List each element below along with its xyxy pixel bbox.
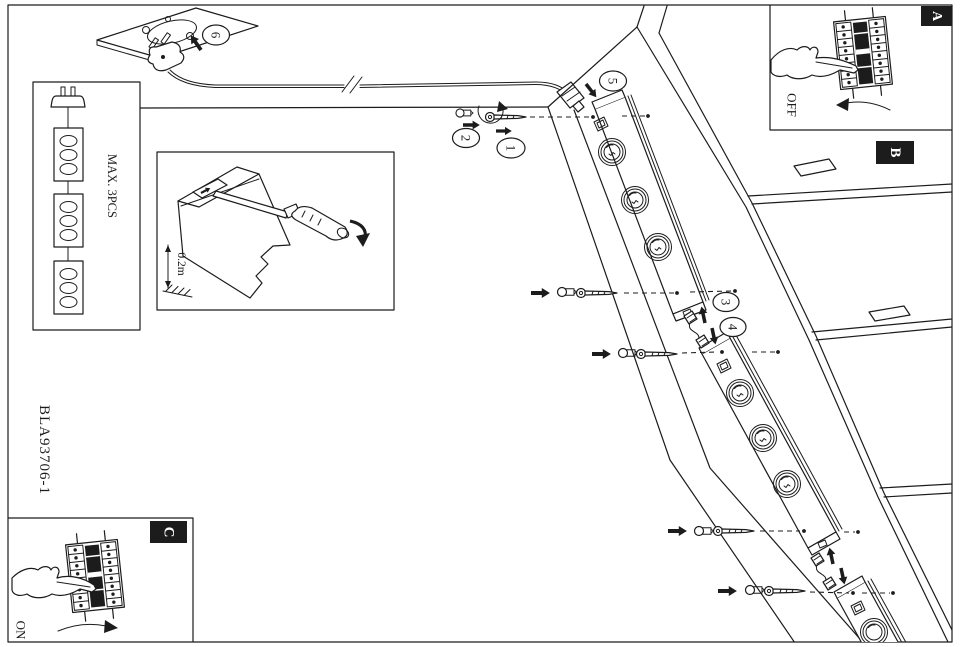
- inset-a-label: A: [929, 11, 944, 22]
- max-pieces-label: MAX. 3PCS: [105, 154, 119, 218]
- step-4-number: 4: [726, 324, 741, 331]
- inset-c-label: C: [161, 527, 177, 538]
- on-label: ON: [14, 621, 29, 640]
- cover-opening-box: 0.2m: [157, 152, 394, 310]
- terminal-block-icon: [833, 7, 894, 100]
- step-2-badge: 2: [453, 129, 480, 148]
- step-6-badge: 6: [203, 25, 230, 45]
- step-4-badge: 4: [720, 318, 746, 337]
- off-label: OFF: [785, 93, 800, 117]
- light-bar-chain-icon: [54, 128, 83, 314]
- step-3-badge: 3: [713, 293, 739, 312]
- terminal-block-icon: [65, 530, 126, 623]
- step-6-number: 6: [209, 32, 224, 39]
- wall-anchor-icon: [746, 586, 765, 595]
- distance-label: 0.2m: [175, 252, 187, 275]
- step-1-number: 1: [504, 145, 519, 152]
- step-2-number: 2: [459, 135, 474, 142]
- instruction-sheet: 6 5: [0, 0, 960, 647]
- wall-anchor-icon: [619, 349, 638, 358]
- step-1-badge: 1: [497, 138, 525, 158]
- max-pieces-box: MAX. 3PCS: [33, 82, 140, 330]
- product-code: BLA93706-1: [36, 405, 52, 495]
- step-5-badge: 5: [600, 71, 627, 91]
- inset-a-switch-off: OFF A: [770, 5, 952, 130]
- assembly-diagram: 6 5: [0, 0, 960, 647]
- wall-anchor-icon: [558, 288, 577, 297]
- inset-c-switch-on: ON C: [8, 518, 193, 642]
- detail-b-marker: B: [876, 141, 914, 164]
- step-3-number: 3: [719, 299, 734, 306]
- wall-anchor-icon: [695, 527, 714, 536]
- wall-anchor-icon: [456, 109, 473, 117]
- step-5-number: 5: [606, 78, 621, 85]
- label-b: B: [887, 147, 903, 157]
